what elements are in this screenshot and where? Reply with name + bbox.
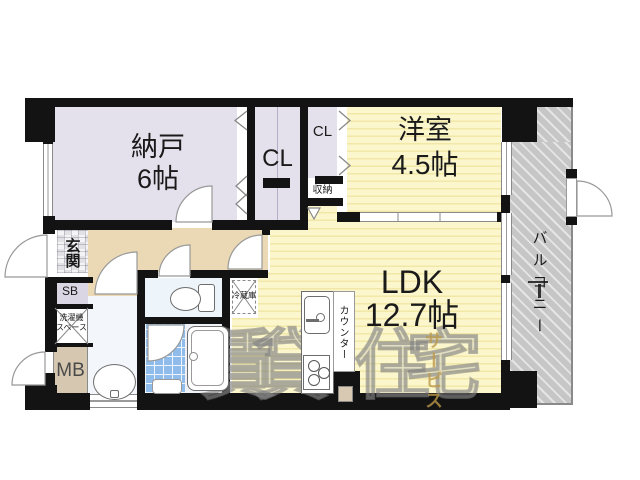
- window-youshitsu-balcony: [501, 142, 512, 195]
- wall-washroom-right: [137, 270, 145, 400]
- wall-laundry-bottom: [45, 343, 93, 347]
- wall-hall-top: [247, 220, 307, 230]
- balcony-floor-upper: [537, 107, 573, 145]
- wall-balcony-bottom-block: [502, 371, 537, 408]
- label-nando-size: 6帖: [110, 165, 206, 195]
- toilet-bowl: [170, 287, 201, 311]
- bathtub: [187, 326, 229, 391]
- label-shuno: 収納: [306, 185, 339, 196]
- wall-ldk-door-stub: [262, 222, 270, 235]
- nando-closet-door-strip: [237, 107, 247, 220]
- label-youshitsu-size: 4.5帖: [360, 150, 490, 181]
- label-ldk-size: 12.7帖: [352, 298, 472, 333]
- wall-closet-h2: [315, 176, 343, 184]
- youshitsu-closet-door-strip: [337, 107, 347, 212]
- wall-nando-bottom-a: [53, 220, 172, 230]
- wall-balcony-door-stub1: [566, 169, 577, 178]
- window-ldk-balcony-2: [501, 283, 512, 360]
- wall-right-stub2: [501, 275, 510, 283]
- hallway-floor-lower: [88, 272, 137, 296]
- bathtub-knob: [189, 352, 198, 361]
- wall-balcony-door-stub2: [566, 216, 577, 225]
- washroom-sink-drain: [110, 390, 119, 398]
- window-ldk-balcony-1: [501, 213, 512, 275]
- bath-counter: [152, 379, 182, 394]
- hallway-floor: [57, 228, 268, 272]
- label-laundry-2: スペース: [55, 324, 88, 333]
- wall-shuno-bottom: [305, 198, 343, 206]
- sliding-door-youshitsu-ldk: [360, 212, 497, 222]
- label-balcony: バルコニー: [530, 212, 547, 357]
- wall-right-top-block: [502, 98, 537, 142]
- room-closet-small-floor: [308, 107, 337, 178]
- label-counter: カウンター: [337, 297, 348, 367]
- wall-closet-v1: [247, 107, 255, 230]
- door-arc-balcony: [577, 181, 612, 216]
- wall-right-stub1: [501, 195, 510, 213]
- label-mb: MB: [53, 361, 88, 382]
- door-arc-genkan: [5, 235, 47, 277]
- label-genkan: 玄関: [63, 231, 80, 275]
- kitchen-faucet-bar: [306, 319, 319, 322]
- wall-nando-bottom-b: [212, 220, 247, 230]
- label-sb: SB: [52, 285, 88, 298]
- label-youshitsu: 洋室: [360, 116, 490, 146]
- wall-sb-top: [45, 277, 93, 283]
- stove-burner-2: [318, 367, 330, 379]
- label-laundry-1: 洗濯機: [55, 314, 88, 323]
- wall-bath-top: [140, 317, 230, 324]
- wall-bottom-a: [25, 393, 90, 410]
- wall-closet-h1: [263, 178, 290, 188]
- kitchen-unit: [301, 291, 334, 394]
- label-closet-small: CL: [308, 124, 337, 141]
- balcony-right-edge: [571, 100, 573, 405]
- watermark-char-4: 宅: [406, 329, 482, 405]
- wall-sb-bottom: [45, 304, 93, 309]
- wall-closet-v2: [300, 103, 308, 230]
- balcony-door-leaf: [566, 178, 577, 217]
- watermark-service-text: サービス: [424, 331, 442, 411]
- wall-top: [25, 98, 573, 107]
- kitchen-stove: [303, 355, 330, 390]
- stove-burner-3: [308, 374, 320, 386]
- window-nando-left: [43, 144, 53, 216]
- label-fridge: 冷蔵庫: [230, 292, 258, 301]
- label-ldk: LDK: [352, 265, 472, 300]
- counter-pillar: [338, 386, 353, 402]
- floorplan-canvas: 賃 貸 住 宅 サービス: [0, 0, 640, 480]
- wall-left-upper: [43, 98, 53, 144]
- label-closet-main: CL: [255, 146, 300, 172]
- label-nando: 納戸: [110, 133, 206, 163]
- wall-youshitsu-bottom-left: [337, 212, 360, 222]
